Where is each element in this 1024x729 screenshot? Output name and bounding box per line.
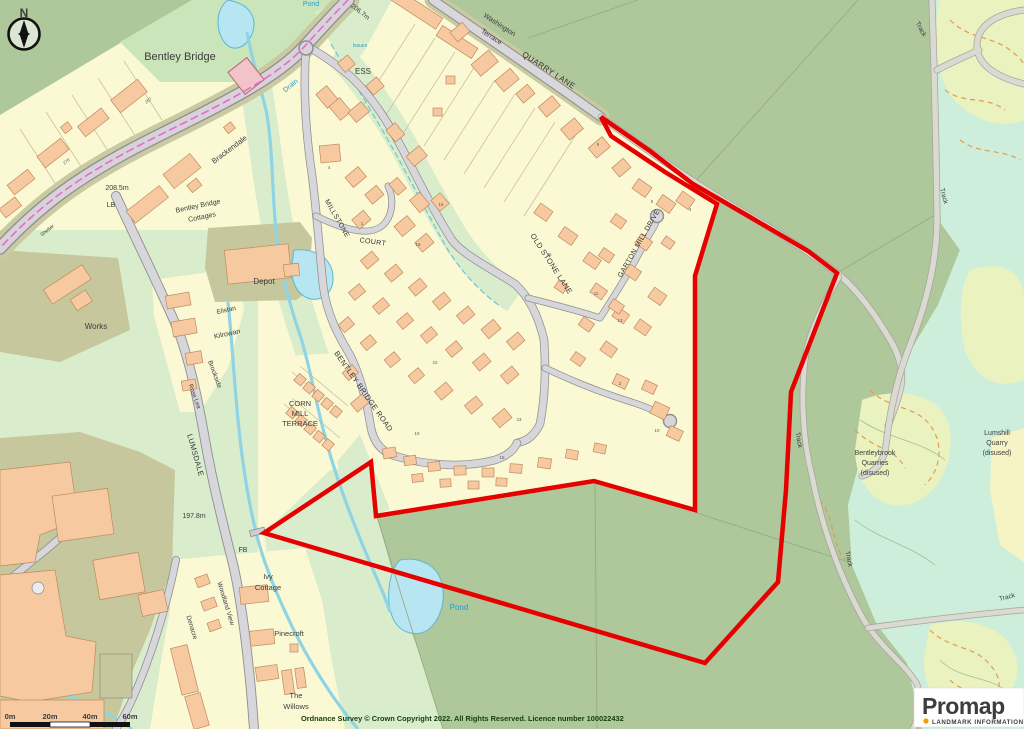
label-corn-mill-3: TERRACE xyxy=(282,419,318,428)
label-willows-2: Willows xyxy=(283,702,309,711)
label-ess: ESS xyxy=(355,67,371,76)
label-fb: FB xyxy=(239,547,248,554)
label-ivy-1: Ivy xyxy=(263,572,273,581)
plot-number: 11 xyxy=(594,291,599,296)
label-pond-top: Pond xyxy=(303,1,319,8)
label-bentleybrook-2: Quarries xyxy=(862,460,889,467)
scale-40: 40m xyxy=(82,712,97,721)
plot-number: 23 xyxy=(517,417,522,422)
promap-logo-brand: Promap xyxy=(922,693,1005,719)
label-ivy-2: Cottage xyxy=(255,583,281,592)
plot-number: 10 xyxy=(655,428,660,433)
label-depot: Depot xyxy=(253,277,275,286)
label-issues: Issues xyxy=(353,43,368,49)
landmark-dot-icon xyxy=(923,718,928,723)
plot-number: 22 xyxy=(433,360,438,365)
label-bentleybrook-1: Bentleybrook xyxy=(855,450,896,457)
promap-logo-tagline: LANDMARK INFORMATION xyxy=(932,719,1024,726)
label-willows-1: The xyxy=(290,691,303,700)
promap-logo[interactable]: Promap LANDMARK INFORMATION xyxy=(914,688,1024,727)
label-height-197: 197.8m xyxy=(182,513,206,520)
scale-60: 60m xyxy=(122,712,137,721)
label-lb: LB xyxy=(107,202,116,209)
label-corn-mill-1: CORN xyxy=(289,399,311,408)
areas-layer xyxy=(0,0,1024,729)
plot-number: 16 xyxy=(439,202,444,207)
label-pond-bottom: Pond xyxy=(450,603,469,612)
map-window: Bentley Bridge Brackendale Bentley Bridg… xyxy=(0,0,1024,729)
label-lumshill-2: Quarry xyxy=(986,440,1008,447)
copyright-text: Ordnance Survey © Crown Copyright 2022. … xyxy=(301,714,624,723)
label-bentley-bridge: Bentley Bridge xyxy=(144,51,216,63)
plot-number: 76 xyxy=(547,252,552,257)
plot-number: 15 xyxy=(500,455,505,460)
map-canvas[interactable]: Bentley Bridge Brackendale Bentley Bridg… xyxy=(0,0,1024,729)
label-bentleybrook-3: (disused) xyxy=(861,470,890,477)
scale-0: 0m xyxy=(5,712,16,721)
label-works: Works xyxy=(85,322,108,331)
label-pinecroft: Pinecroft xyxy=(274,629,305,638)
plot-number: 19 xyxy=(415,431,420,436)
plot-number: 18 xyxy=(416,242,421,247)
label-lumshill-3: (disused) xyxy=(983,450,1012,457)
plot-number: 13 xyxy=(618,318,623,323)
label-lumshill-1: Lumshill xyxy=(984,430,1010,437)
label-height-208: 208.5m xyxy=(105,185,129,192)
scale-20: 20m xyxy=(42,712,57,721)
label-corn-mill-2: MILL xyxy=(292,409,309,418)
compass-north-label: N xyxy=(20,6,29,20)
